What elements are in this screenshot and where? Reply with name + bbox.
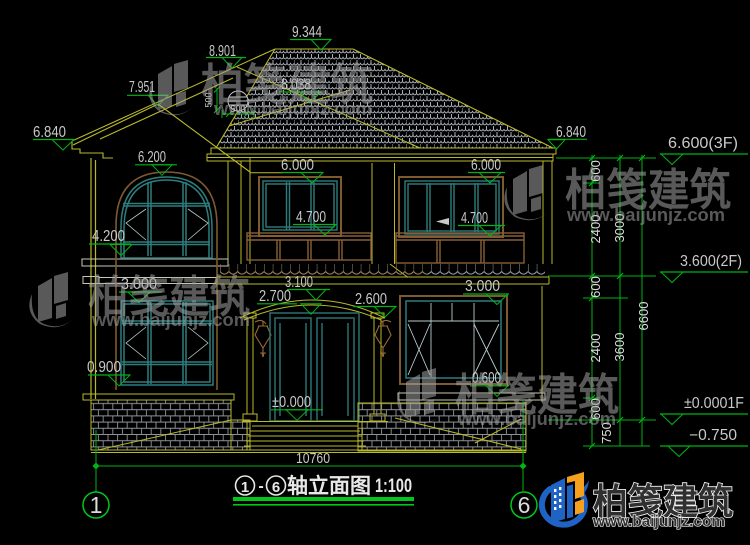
svg-text:www.baijunjz.com: www.baijunjz.com <box>457 409 616 429</box>
svg-text:−0.750: −0.750 <box>689 427 737 444</box>
svg-text:1: 1 <box>241 479 249 496</box>
svg-text:±0.0001F: ±0.0001F <box>684 395 744 412</box>
svg-text:0.900: 0.900 <box>87 359 121 376</box>
svg-text:4.700: 4.700 <box>296 209 326 226</box>
svg-text:6: 6 <box>518 492 531 518</box>
svg-text:6.000: 6.000 <box>471 157 501 174</box>
svg-text:3.000: 3.000 <box>465 278 500 295</box>
svg-text:10760: 10760 <box>296 451 330 467</box>
svg-text:6.840: 6.840 <box>33 124 66 141</box>
svg-text:6.200: 6.200 <box>138 149 166 166</box>
svg-text:6600: 6600 <box>636 302 651 331</box>
svg-text:9.344: 9.344 <box>292 24 322 41</box>
svg-text:-: - <box>258 478 263 495</box>
svg-text:8.901: 8.901 <box>209 43 236 60</box>
svg-text:4.700: 4.700 <box>461 210 488 227</box>
svg-text:1: 1 <box>90 492 103 518</box>
svg-text:6.600(3F): 6.600(3F) <box>668 135 738 152</box>
svg-text:轴立面图: 轴立面图 <box>287 474 371 498</box>
svg-text:www.baijunjz.com: www.baijunjz.com <box>592 513 725 530</box>
svg-text:www.baijunjz.com: www.baijunjz.com <box>566 205 725 225</box>
svg-text:4.200: 4.200 <box>92 228 125 245</box>
svg-text:6: 6 <box>272 479 280 496</box>
svg-text:www.baijunjz.com: www.baijunjz.com <box>213 99 372 119</box>
svg-text:6.000: 6.000 <box>281 157 314 174</box>
svg-text:1:100: 1:100 <box>375 476 412 497</box>
svg-text:3.600(2F): 3.600(2F) <box>680 253 742 270</box>
svg-text:±0.000: ±0.000 <box>272 394 311 411</box>
svg-text:3600: 3600 <box>612 333 627 362</box>
svg-text:6.840: 6.840 <box>556 124 586 141</box>
svg-text:600: 600 <box>588 276 603 298</box>
svg-text:2.600: 2.600 <box>355 291 387 308</box>
svg-text:www.baijunjz.com: www.baijunjz.com <box>91 310 250 330</box>
svg-text:2.700: 2.700 <box>259 288 291 305</box>
svg-text:2400: 2400 <box>588 334 603 363</box>
